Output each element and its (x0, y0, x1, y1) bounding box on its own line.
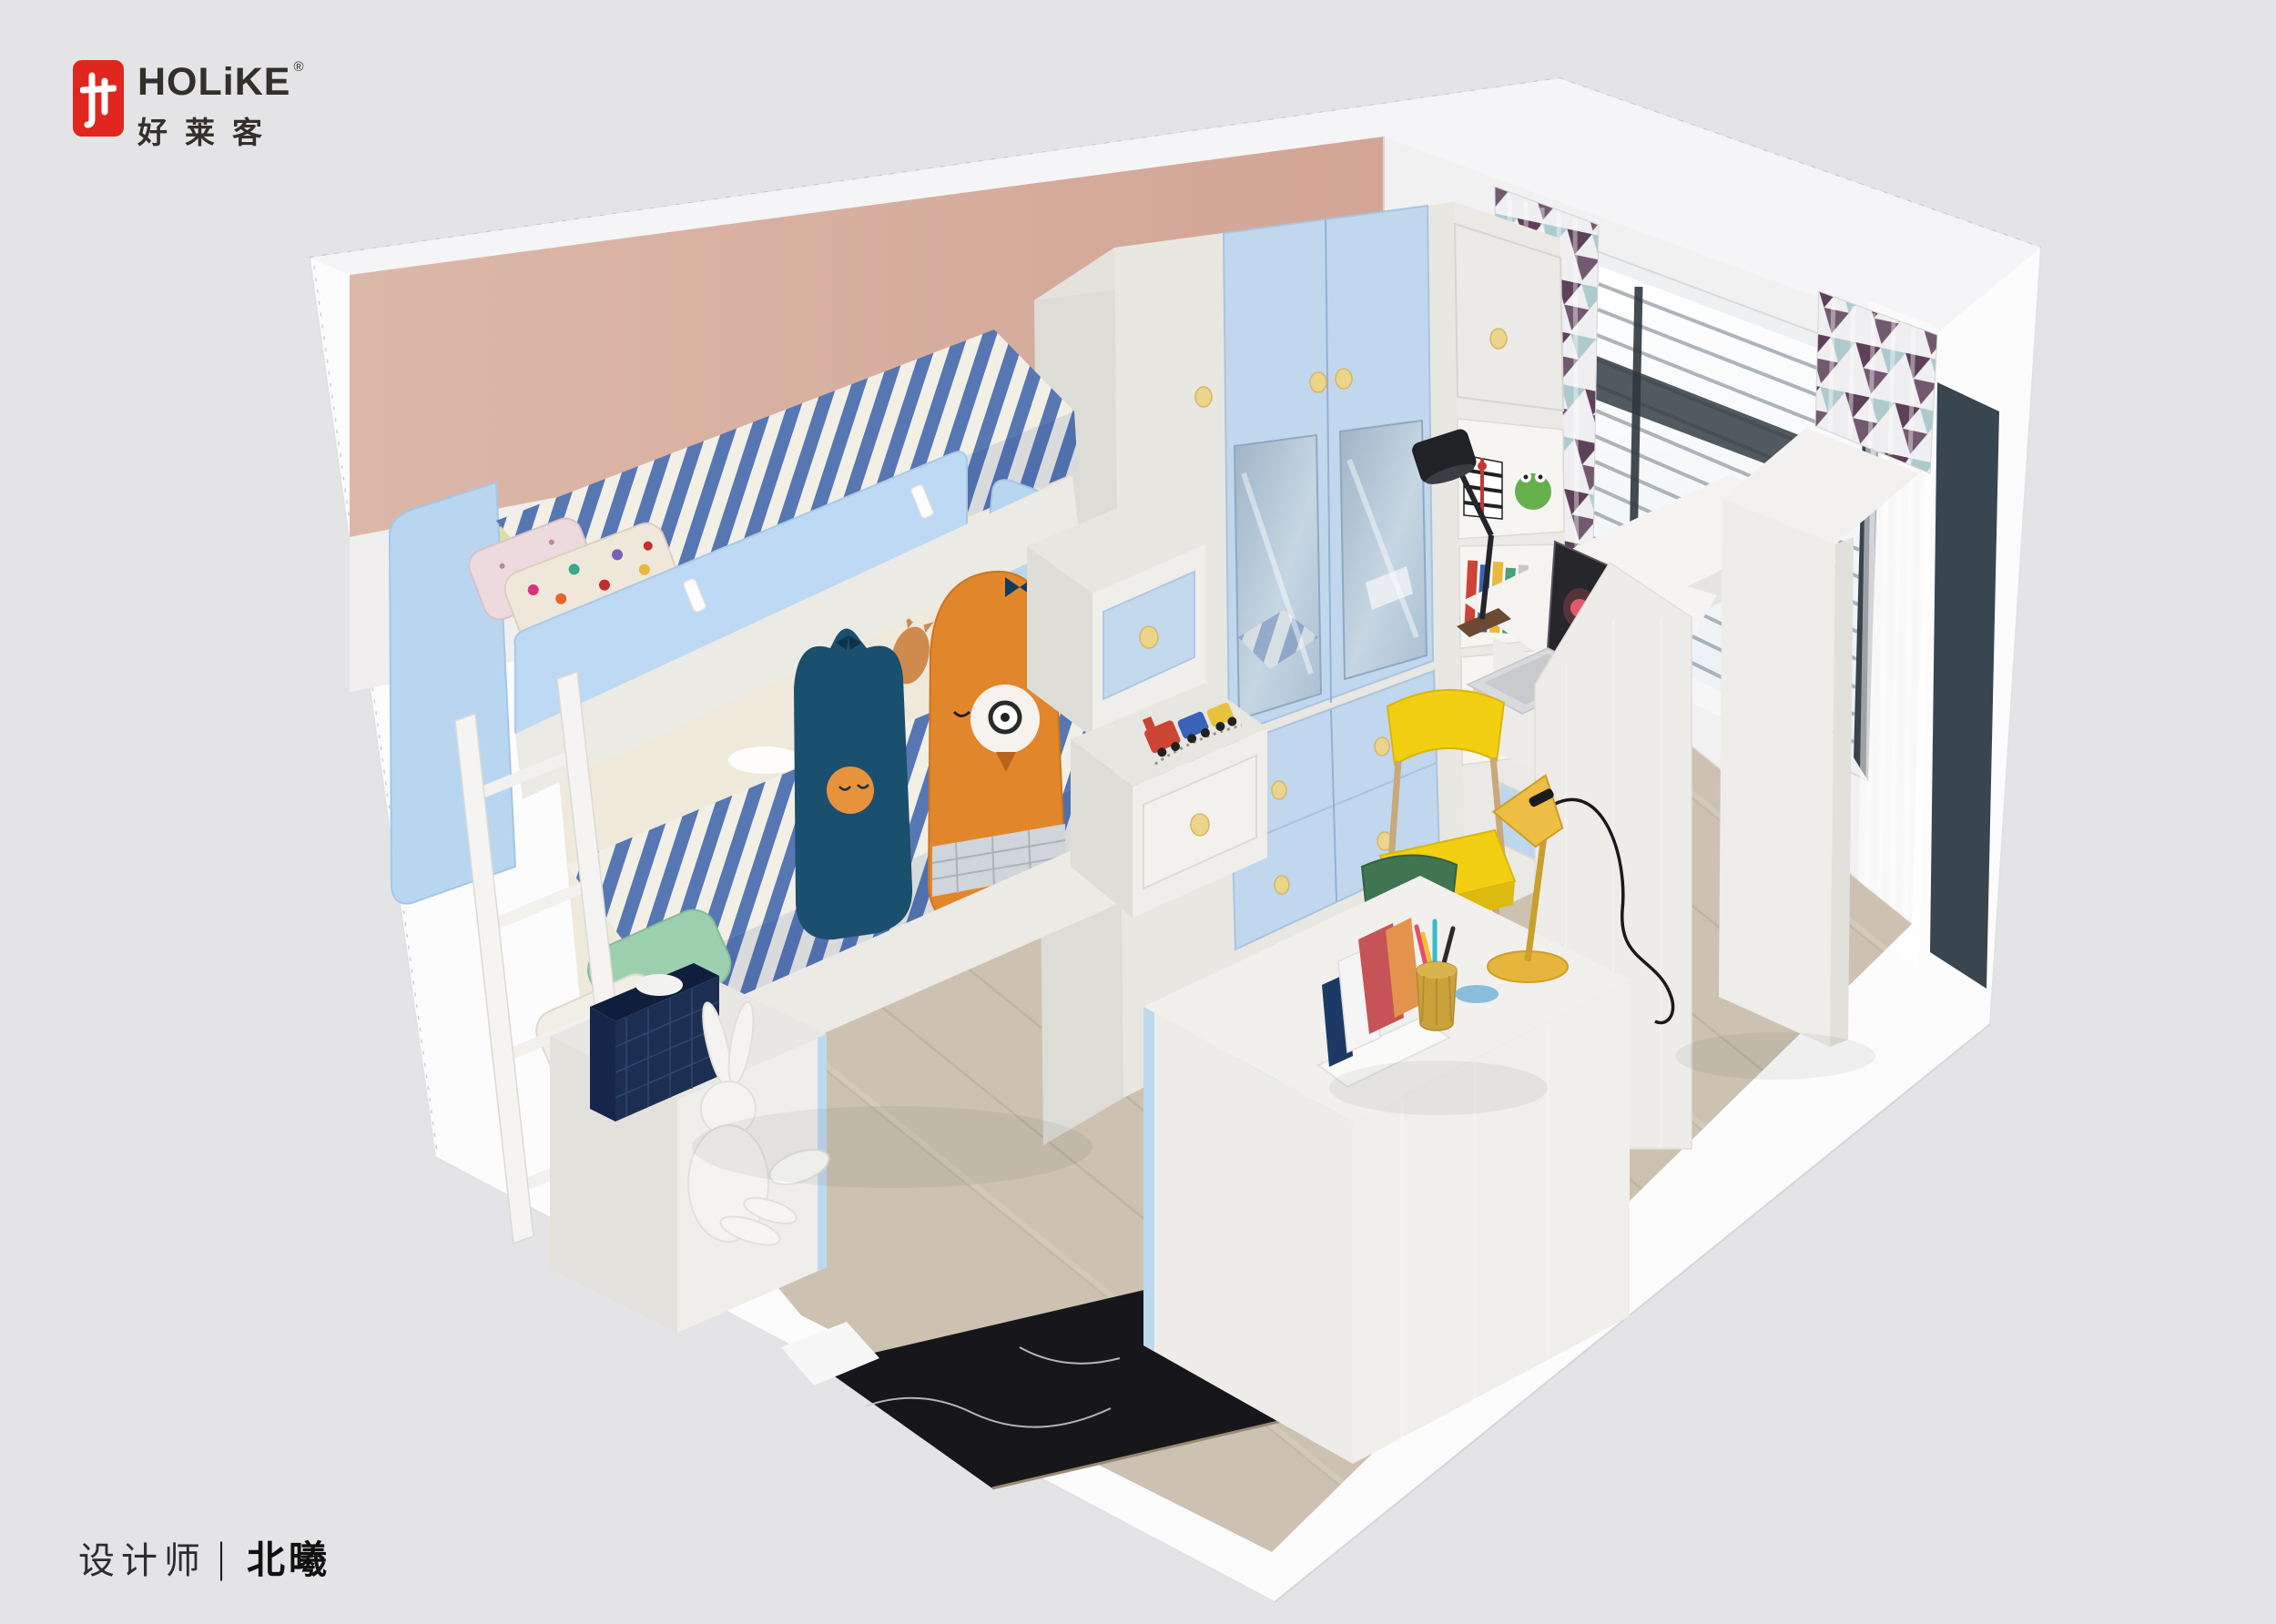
column-front (1719, 499, 1835, 1047)
logo-text-block: HOLiKE ® 好莱客 (137, 60, 305, 152)
pen-cup (1417, 921, 1457, 1030)
holike-glyph (80, 68, 117, 128)
registered-mark: ® (293, 60, 304, 75)
front-desk-blue-trim (1143, 1007, 1154, 1351)
credit-divider: | (218, 1533, 225, 1582)
designer-credit: 设计师 | 北曦 (78, 1529, 330, 1585)
brand-logo: HOLiKE ® 好莱客 (73, 60, 305, 152)
logo-wordmark: HOLiKE ® (137, 62, 305, 103)
designer-name: 北曦 (247, 1529, 330, 1585)
logo-name: HOLiKE (137, 62, 290, 103)
room-render (0, 0, 2276, 1624)
logo-chinese-name: 好莱客 (137, 108, 305, 152)
designer-role-label: 设计师 (78, 1531, 207, 1584)
holike-logo-icon (73, 60, 124, 137)
poster-canvas: HOLiKE ® 好莱客 设计师 | 北曦 (0, 0, 2276, 1624)
blue-coaster (1455, 985, 1499, 1003)
bookshelf-knob (1490, 329, 1507, 349)
cat-cushion (794, 628, 912, 939)
